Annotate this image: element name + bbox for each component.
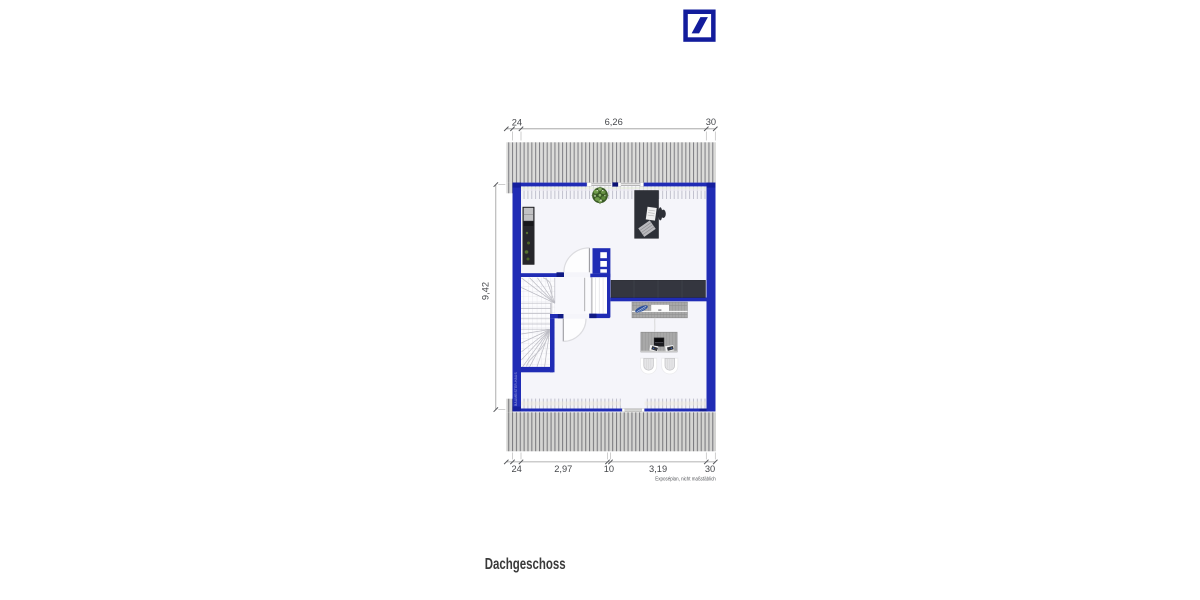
svg-text:3,19: 3,19: [649, 464, 667, 474]
svg-text:6,26: 6,26: [605, 117, 623, 127]
svg-text:Dachgeschoss: Dachgeschoss: [485, 556, 566, 573]
svg-text:BAUMEISTER-HAUS: BAUMEISTER-HAUS: [514, 372, 518, 406]
svg-text:10: 10: [604, 464, 614, 474]
svg-text:30: 30: [706, 117, 716, 127]
svg-text:24: 24: [512, 464, 522, 474]
svg-text:2,97: 2,97: [554, 464, 572, 474]
svg-text:Exposéplan, nicht maßstäblich: Exposéplan, nicht maßstäblich: [655, 477, 716, 483]
svg-text:24: 24: [512, 118, 522, 128]
svg-text:30: 30: [705, 464, 715, 474]
svg-text:9,42: 9,42: [481, 282, 491, 300]
